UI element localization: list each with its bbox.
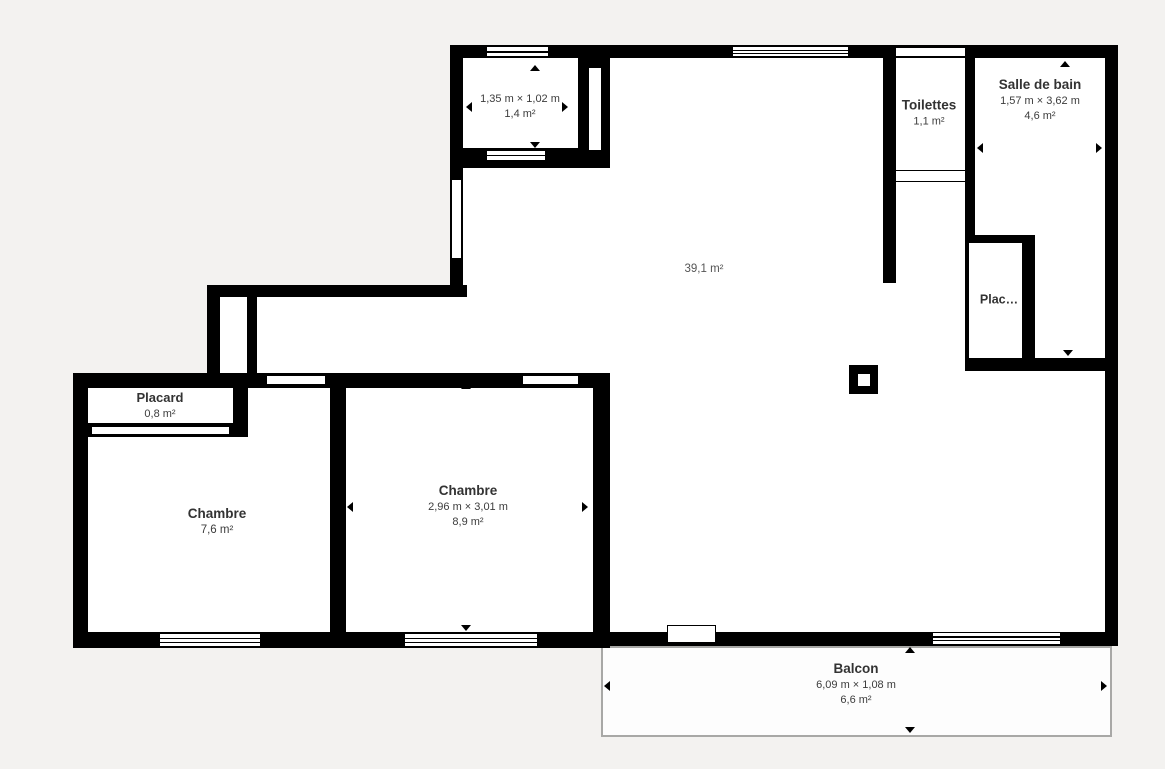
wall-segment [233,388,248,437]
measure-arrow-up-icon [1060,61,1070,67]
floor-plan: 1,35 m × 1,02 m 1,4 m² Toilettes 1,1 m² … [0,0,1165,769]
measure-arrow-right-icon [562,102,568,112]
room-label-chambre-1: Chambre 7,6 m² [188,505,247,539]
column [849,365,878,394]
room-area: 4,6 m² [999,109,1082,124]
window [160,634,260,646]
window [405,634,537,646]
measure-arrow-up-icon [461,383,471,389]
room-label-chambre-2: Chambre 2,96 m × 3,01 m 8,9 m² [428,482,508,530]
room-area: 39,1 m² [685,262,724,278]
wall-segment [965,45,975,243]
wall-segment [965,358,1105,371]
room-area: 1,1 m² [902,115,957,130]
sliding-door [487,151,545,160]
measure-arrow-left-icon [977,143,983,153]
room-label-balcon: Balcon 6,09 m × 1,08 m 6,6 m² [816,660,896,708]
measure-arrow-right-icon [1096,143,1102,153]
door-opening [523,376,578,384]
measure-arrow-up-icon [530,65,540,71]
room-label-plac: Plac… [980,292,1018,309]
measure-arrow-down-icon [530,142,540,148]
wall-segment [207,285,467,297]
door-opening [589,68,601,150]
wall-segment [1022,235,1035,360]
room-label-placard: Placard 0,8 m² [137,389,184,421]
room-name: Placard [137,389,184,407]
room-name: Salle de bain [999,76,1082,94]
measure-arrow-left-icon [466,102,472,112]
room-area: 7,6 m² [188,523,247,539]
room-label-salle-de-bain: Salle de bain 1,57 m × 3,62 m 4,6 m² [999,76,1082,124]
room-area: 6,6 m² [816,693,896,708]
wall-segment [330,373,346,648]
wall-segment [883,45,896,283]
room-dimensions: 2,96 m × 3,01 m [428,500,508,515]
room-name: Plac… [980,292,1018,309]
wall-segment [593,373,610,648]
wall-segment [965,243,969,358]
room-label-entry-closet: 1,35 m × 1,02 m 1,4 m² [480,92,560,122]
wall-segment [247,297,257,375]
window [487,47,548,56]
room-area: 8,9 m² [428,515,508,530]
measure-arrow-down-icon [1063,350,1073,356]
room-fill-toilettes-access [896,171,965,283]
room-name: Toilettes [902,96,957,114]
measure-arrow-left-icon [604,681,610,691]
room-dimensions: 6,09 m × 1,08 m [816,678,896,693]
wall-segment [73,373,88,648]
room-name: Chambre [428,482,508,500]
window [452,180,461,258]
room-dimensions: 1,35 m × 1,02 m [480,92,560,107]
window [896,48,965,56]
measure-arrow-right-icon [582,502,588,512]
measure-arrow-up-icon [905,647,915,653]
room-fill-living-upper [610,58,883,303]
measure-arrow-down-icon [461,625,471,631]
room-dimensions: 1,57 m × 3,62 m [999,94,1082,109]
room-label-sejour: 39,1 m² [685,262,724,278]
measure-arrow-right-icon [1101,681,1107,691]
room-name: Chambre [188,505,247,523]
wall-segment [207,285,220,385]
room-name: Balcon [816,660,896,678]
door-opening [896,170,965,182]
window [733,47,848,56]
room-label-toilettes: Toilettes 1,1 m² [902,96,957,129]
measure-arrow-down-icon [905,727,915,733]
wall-segment [1105,45,1118,646]
door-opening [267,376,325,384]
door-opening [92,427,229,434]
measure-arrow-left-icon [347,502,353,512]
room-area: 0,8 m² [137,406,184,421]
room-area: 1,4 m² [480,107,560,122]
balcony-door [667,625,716,643]
window [933,633,1060,644]
